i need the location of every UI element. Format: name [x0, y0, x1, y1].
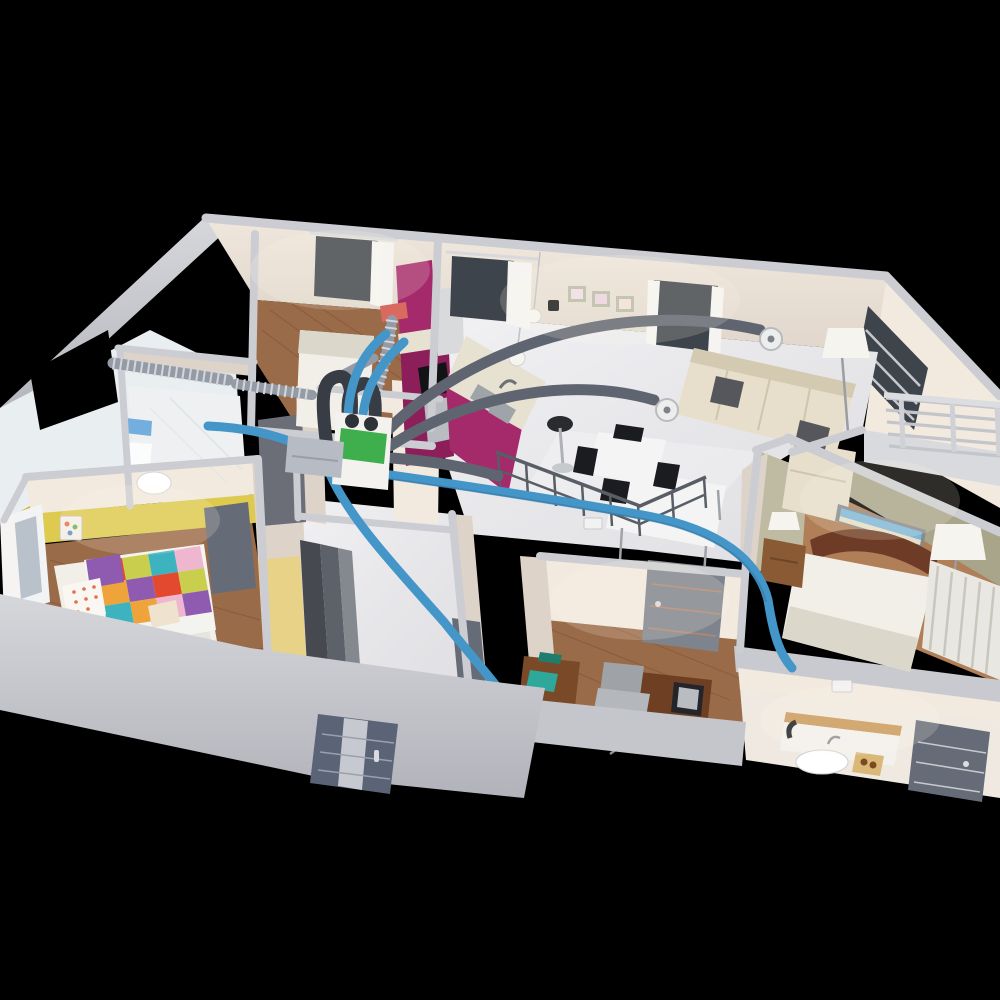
- tray-item-2: [870, 762, 877, 769]
- office-wall-vent: [584, 518, 602, 529]
- living-floor-lamp-shade: [822, 328, 870, 358]
- office-monitor-screen: [677, 687, 699, 710]
- master-table-lamp: [768, 512, 800, 530]
- bath2-wood-tray: [852, 752, 884, 776]
- bar-stool-base: [552, 463, 574, 473]
- hrv-port-1: [345, 414, 359, 428]
- round-vent-2-hole: [664, 407, 671, 414]
- hrv-green-face: [338, 428, 387, 464]
- hrv-port-2: [364, 417, 378, 431]
- entry-door-handle: [374, 750, 379, 762]
- bathroom-blue-tiles: [125, 418, 152, 436]
- master-nightstand: [760, 538, 806, 588]
- floorplan-render: [0, 0, 1000, 1000]
- bath2-door-handle: [963, 761, 969, 767]
- round-vent-1-hole: [768, 336, 775, 343]
- tray-item-1: [861, 759, 868, 766]
- render-canvas: [0, 0, 1000, 1000]
- master-floor-lamp-shade: [930, 524, 986, 560]
- manifold: [285, 436, 344, 478]
